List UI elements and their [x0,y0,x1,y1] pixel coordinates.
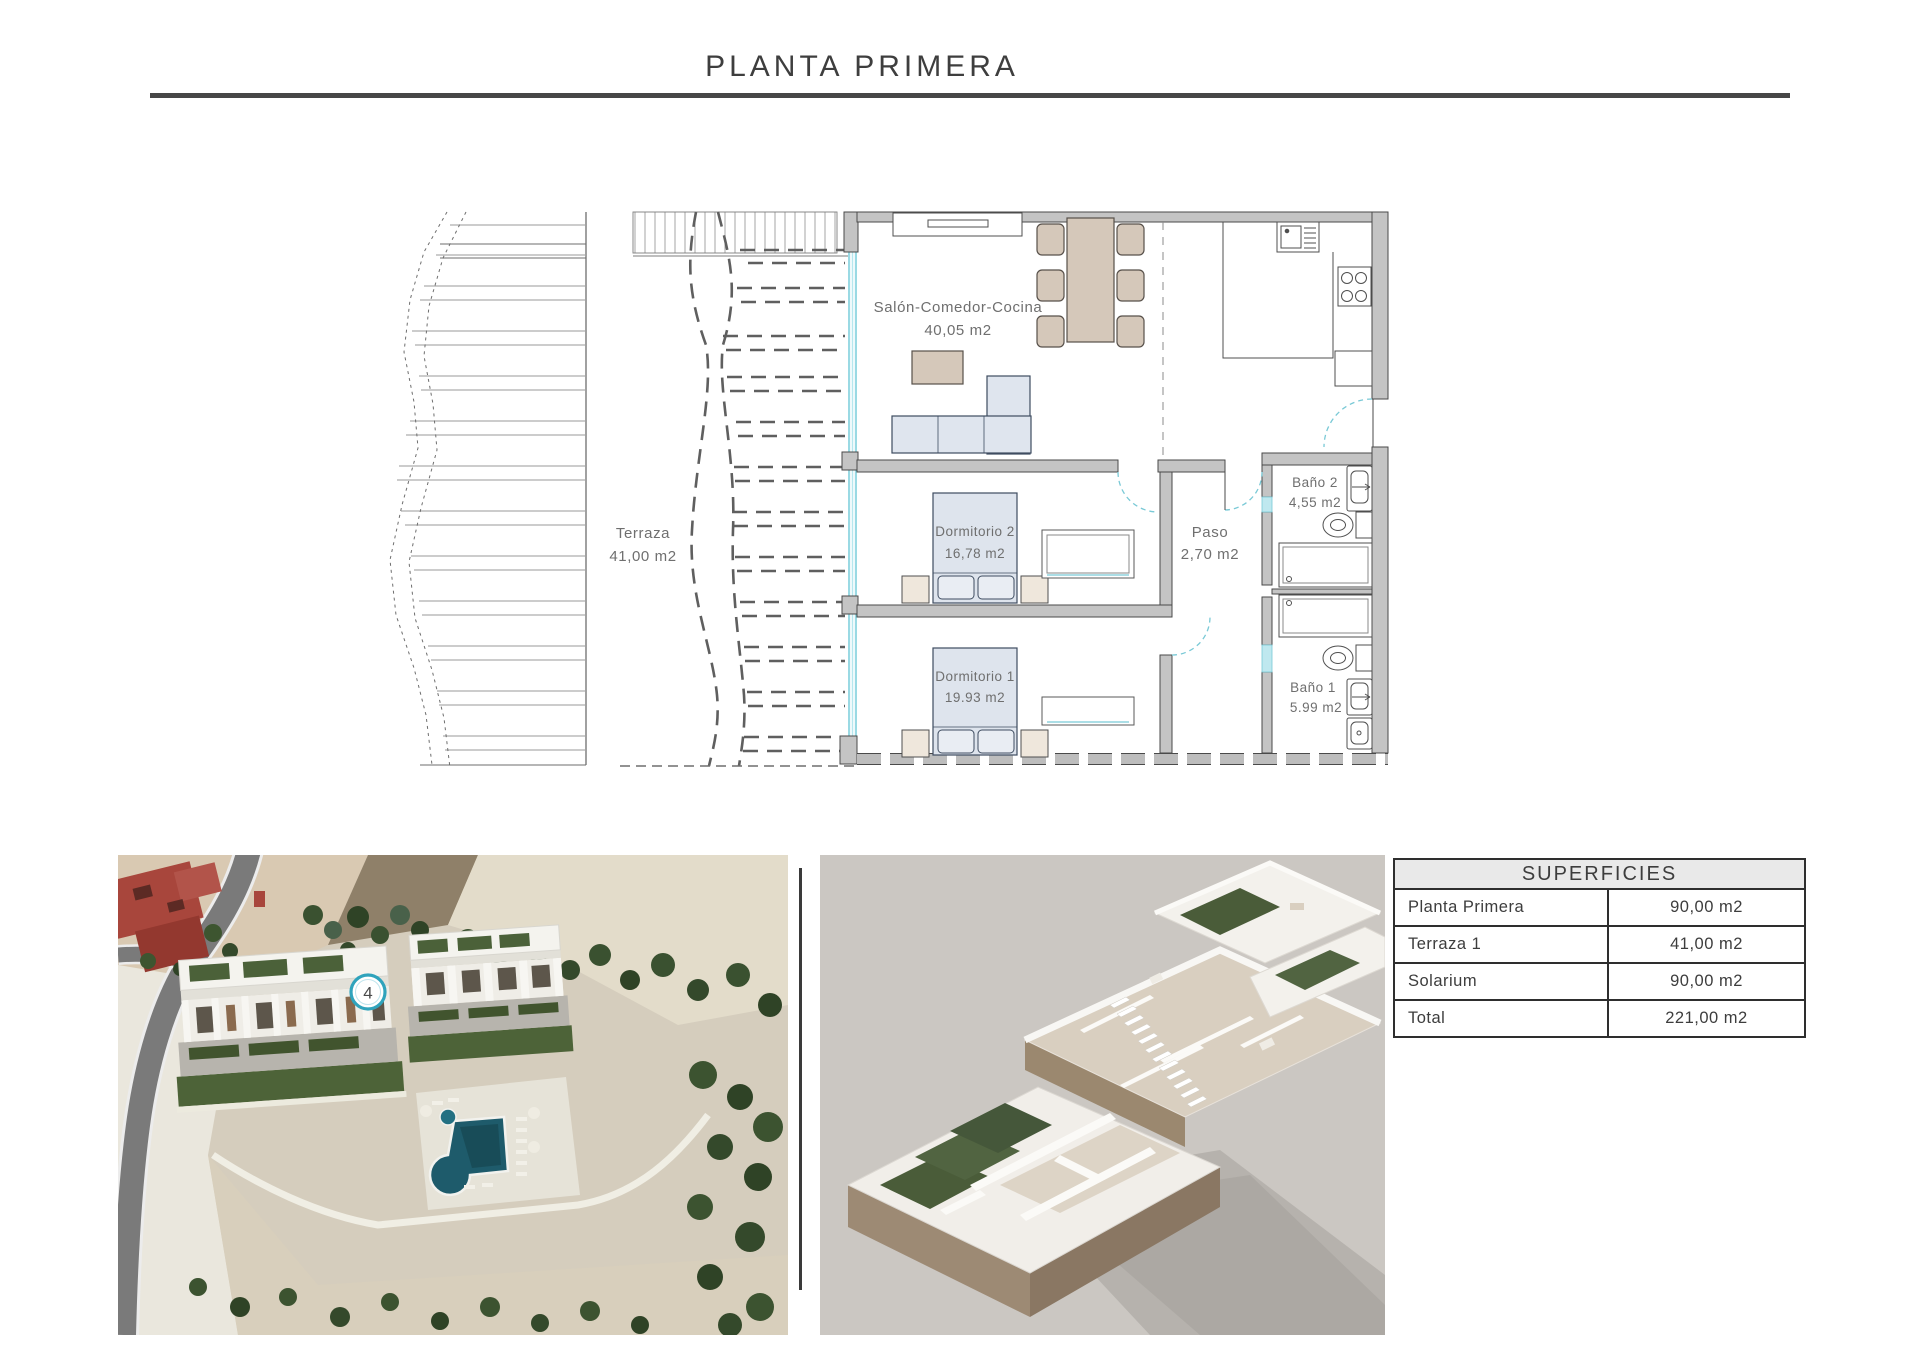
unit-number-badge: 4 [351,975,385,1009]
label-terraza-area: 41,00 m2 [609,548,676,565]
svg-text:4: 4 [363,984,372,1003]
bedroom2 [902,493,1134,603]
pool-area [416,1077,580,1210]
row-label: Terraza 1 [1395,927,1609,962]
wardrobe2 [1042,530,1134,578]
label-bano1: Baño 1 [1290,680,1336,695]
kitchen [1163,222,1372,460]
superficies-table: SUPERFICIES Planta Primera 90,00 m2 Terr… [1393,858,1806,1038]
row-value: 41,00 m2 [1609,927,1804,962]
label-terraza: Terraza [616,525,670,542]
label-paso-area: 2,70 m2 [1181,546,1239,563]
floorplan-drawing: Terraza 41,00 m2 Salón-Comedor-Cocina 40… [380,165,1440,790]
row-label: Planta Primera [1395,890,1609,925]
label-dorm2-area: 16,78 m2 [945,546,1005,561]
dining-table [1067,218,1114,342]
coffee-table [912,351,963,384]
table-row: Terraza 1 41,00 m2 [1395,927,1804,964]
label-salon-area: 40,05 m2 [924,322,991,339]
label-bano2-area: 4,55 m2 [1289,495,1341,510]
terrace-glass-wall [848,252,857,752]
image-divider-line [799,868,802,1290]
row-value: 90,00 m2 [1609,890,1804,925]
label-salon: Salón-Comedor-Cocina [874,299,1043,316]
label-dorm1-area: 19.93 m2 [945,690,1005,705]
building-a [167,945,407,1113]
table-row: Solarium 90,00 m2 [1395,964,1804,1001]
isometric-3d-render [820,855,1385,1335]
terrain-edge-lines [390,212,586,768]
wardrobe1 [1042,697,1134,725]
aerial-site-photo: 4 [118,855,788,1335]
row-value: 90,00 m2 [1609,964,1804,999]
label-bano2: Baño 2 [1292,475,1338,490]
title-rule [150,93,1790,98]
bedroom1 [902,648,1134,757]
table-row: Planta Primera 90,00 m2 [1395,890,1804,927]
label-dorm2: Dormitorio 2 [935,524,1015,539]
label-dorm1: Dormitorio 1 [935,669,1015,684]
row-label: Total [1395,1001,1609,1036]
terrain-contours [397,225,585,750]
terrace-pergola-dashes [620,212,855,766]
sofa [892,416,1031,453]
row-label: Solarium [1395,964,1609,999]
plan-sheet-page: PLANTA PRIMERA [0,0,1920,1357]
label-paso: Paso [1192,524,1229,541]
row-value: 221,00 m2 [1609,1001,1804,1036]
building-b [401,924,573,1062]
table-row: Total 221,00 m2 [1395,1001,1804,1036]
bathroom1-fixtures [1279,595,1372,749]
label-bano1-area: 5.99 m2 [1290,700,1342,715]
page-title: PLANTA PRIMERA [0,50,1724,84]
superficies-header: SUPERFICIES [1395,860,1804,890]
